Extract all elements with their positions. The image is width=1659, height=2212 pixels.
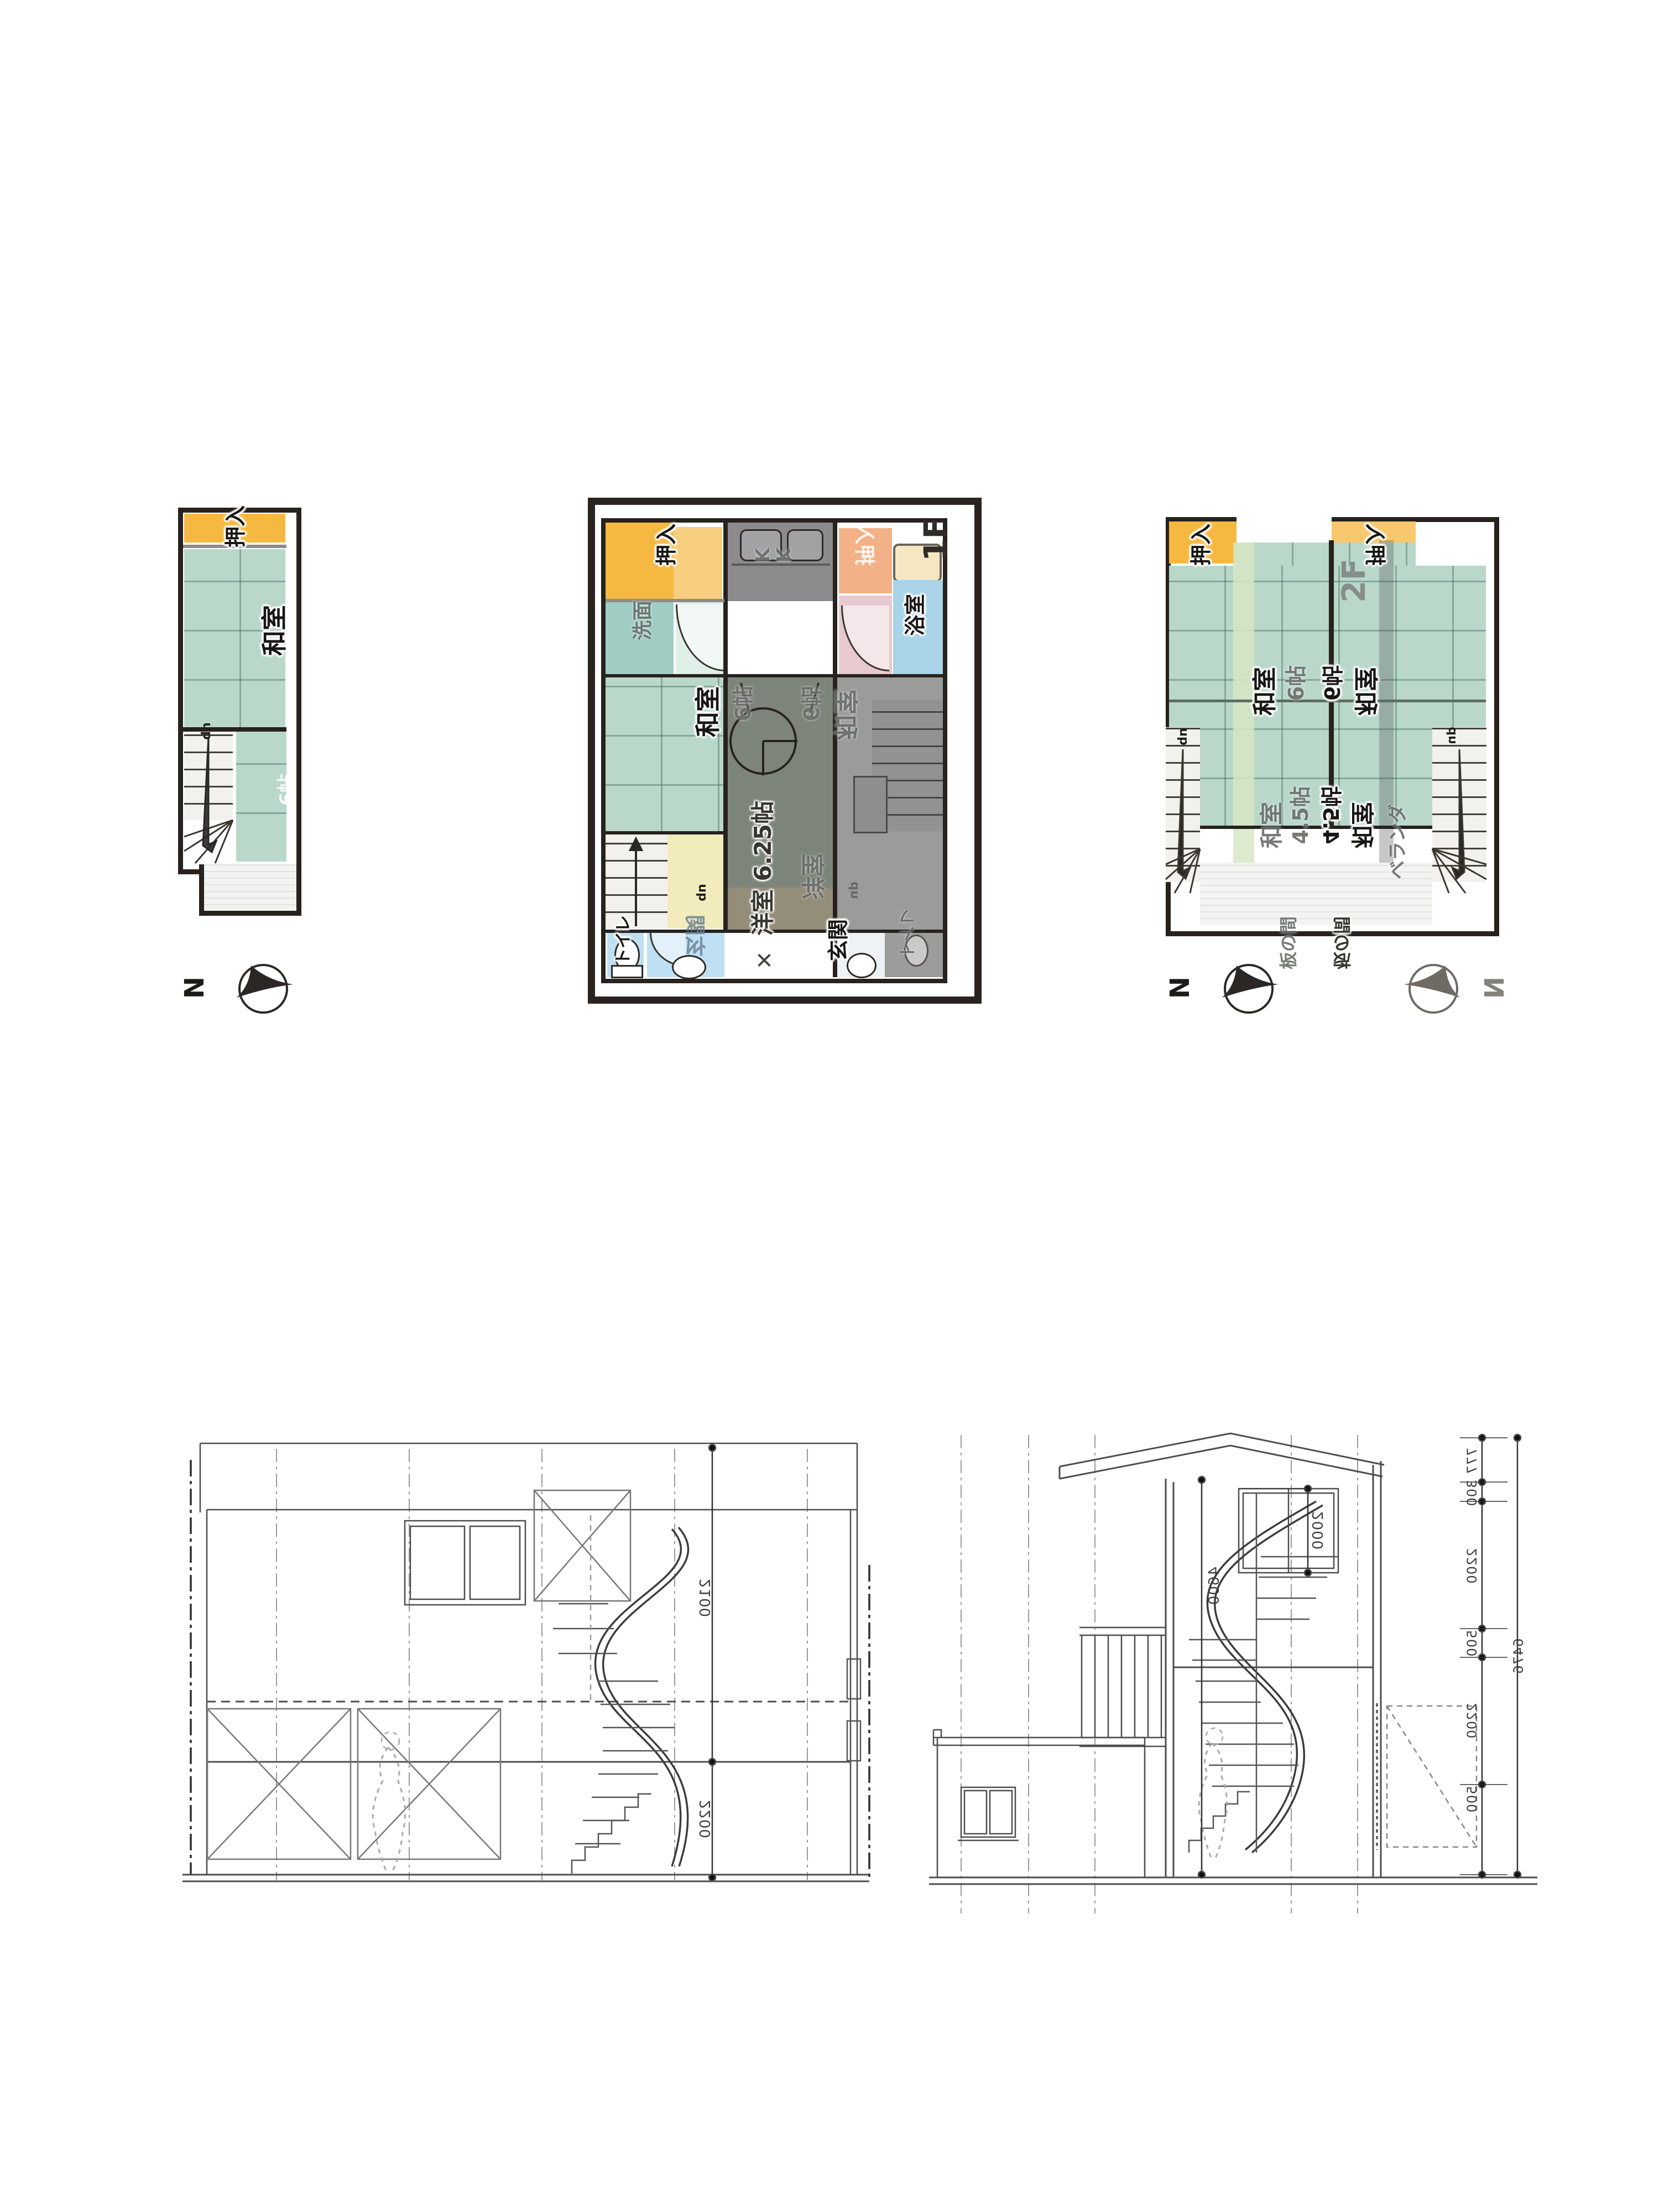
plan_1f-label-3: K bbox=[754, 548, 773, 562]
elevation_b-label-5: 500 bbox=[1465, 1630, 1479, 1657]
plan_1f-label-14: 玄関 bbox=[684, 915, 705, 957]
elevation_a-label-0: 2100 bbox=[698, 1579, 713, 1618]
elevation_b-label-0: 2000 bbox=[1311, 1511, 1326, 1550]
plan_2f-label-16: N bbox=[1167, 977, 1193, 999]
plan_2f-label-15: up bbox=[1446, 727, 1458, 744]
plan_2f-label-11: ベランダ bbox=[1389, 804, 1407, 879]
plan_2f-label-2: 押入 bbox=[1364, 524, 1385, 566]
plan_1f-label-12: 洋室 bbox=[800, 853, 823, 900]
plan_2f-label-12: 板の間 bbox=[1280, 916, 1297, 969]
plan_1f-label-0: 1F bbox=[920, 517, 952, 561]
plan_1f-label-6: 浴室 bbox=[905, 594, 926, 636]
plan_1f-label-1: 押入 bbox=[656, 524, 677, 566]
plan_1f-label-4: K bbox=[773, 548, 792, 562]
plan_2f-label-4: 6帖 bbox=[1286, 665, 1307, 701]
plan_1f-label-18: up bbox=[848, 881, 860, 899]
plan_2f-label-9: 4.5帖 bbox=[1320, 786, 1341, 844]
plan_1f-label-19: ✕ bbox=[755, 950, 774, 972]
plan_2f-label-14: dn bbox=[1177, 728, 1190, 745]
plan_1f-label-15: 玄関 bbox=[828, 919, 849, 961]
plan_2f-label-13: 板の間 bbox=[1333, 916, 1350, 969]
plan_2f-label-8: 4.5帖 bbox=[1290, 786, 1311, 844]
plan_1f-label-8: 6帖 bbox=[733, 686, 754, 721]
plan_left-label-4: N bbox=[181, 977, 208, 999]
plan_2f-label-6: 和室 bbox=[1353, 667, 1377, 716]
plan_2f-label-10: 和室 bbox=[1350, 802, 1373, 848]
plan_1f-label-2: 洗面 bbox=[633, 601, 653, 640]
plan_1f-label-16: トイレ bbox=[898, 909, 914, 958]
plan_left-label-0: 押入 bbox=[225, 505, 246, 547]
plan_1f-label-17: dn bbox=[696, 884, 708, 901]
elevation_b-label-2: 777 bbox=[1465, 1448, 1479, 1475]
elevation_b-label-4: 2200 bbox=[1465, 1548, 1479, 1584]
plan_2f-label-7: 和室 bbox=[1260, 802, 1284, 848]
elevation_b-label-1: 4600 bbox=[1207, 1567, 1222, 1605]
plan_1f-label-9: 6帖 bbox=[800, 686, 821, 721]
plan_1f-label-13: トイレ bbox=[615, 915, 632, 965]
plan_2f-label-17: N bbox=[1480, 977, 1506, 999]
elevation_a-label-1: 2200 bbox=[698, 1800, 713, 1839]
plan_1f-label-11: 洋室 6.25帖 bbox=[752, 801, 775, 936]
plan_2f-label-3: 和室 bbox=[1253, 667, 1277, 716]
plan_1f-label-7: 和室 bbox=[695, 686, 721, 737]
plan_2f-label-1: 押入 bbox=[1191, 524, 1212, 566]
plan_left-label-1: 和室 bbox=[262, 605, 287, 656]
elevation_b-label-7: 500 bbox=[1465, 1786, 1479, 1813]
drawing-sheet: 押入和室6帖dnN1F押入洗面KK押入浴室和室6帖6帖和室洋室 6.25帖洋室ト… bbox=[0, 0, 1659, 2212]
plan_2f-label-5: 6帖 bbox=[1321, 665, 1342, 701]
plan_left-label-2: 6帖 bbox=[278, 774, 296, 806]
elevation_b-label-8: 6476 bbox=[1512, 1638, 1525, 1674]
plan_left-label-3: dn bbox=[201, 722, 213, 739]
plan_1f-label-10: 和室 bbox=[832, 689, 858, 740]
labels-layer: 押入和室6帖dnN1F押入洗面KK押入浴室和室6帖6帖和室洋室 6.25帖洋室ト… bbox=[0, 0, 1659, 2212]
elevation_b-label-6: 2200 bbox=[1465, 1703, 1479, 1739]
plan_1f-label-5: 押入 bbox=[854, 524, 875, 566]
elevation_b-label-3: 300 bbox=[1465, 1480, 1479, 1507]
